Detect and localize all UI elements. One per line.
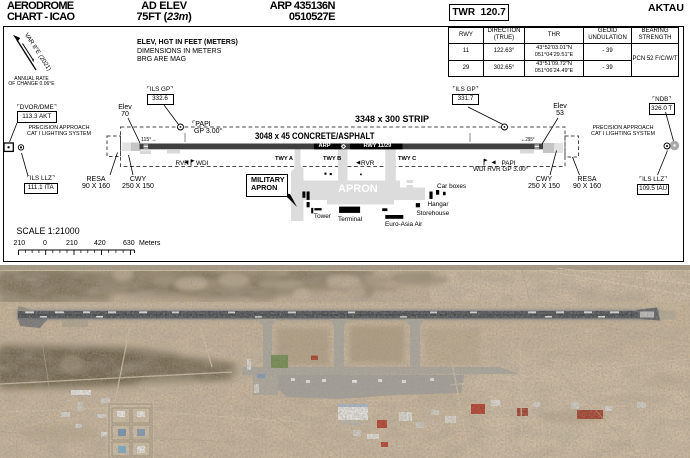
svg-text:VAR 8°E (2021): VAR 8°E (2021) xyxy=(23,32,53,72)
